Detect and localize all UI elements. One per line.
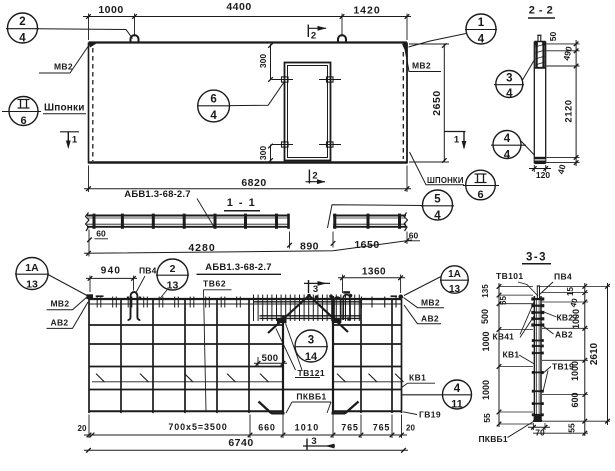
svg-text:55: 55 bbox=[499, 296, 508, 305]
svg-text:1000: 1000 bbox=[481, 331, 491, 351]
svg-text:765: 765 bbox=[341, 423, 358, 433]
svg-text:6740: 6740 bbox=[228, 437, 253, 449]
svg-text:1А: 1А bbox=[25, 262, 39, 274]
svg-text:МВ2: МВ2 bbox=[54, 62, 73, 72]
svg-text:4: 4 bbox=[504, 133, 511, 145]
svg-text:2610: 2610 bbox=[589, 342, 600, 365]
svg-text:1000: 1000 bbox=[98, 4, 123, 16]
svg-text:3: 3 bbox=[506, 73, 512, 85]
svg-text:14: 14 bbox=[305, 351, 318, 363]
svg-text:765: 765 bbox=[373, 423, 390, 433]
svg-text:11: 11 bbox=[451, 399, 463, 411]
svg-text:1420: 1420 bbox=[353, 5, 380, 17]
svg-text:135: 135 bbox=[481, 284, 490, 298]
svg-text:АВ2: АВ2 bbox=[555, 330, 573, 340]
svg-text:1: 1 bbox=[454, 135, 460, 146]
svg-text:2: 2 bbox=[312, 171, 317, 182]
svg-text:КВ1: КВ1 bbox=[409, 373, 426, 383]
svg-text:940: 940 bbox=[101, 266, 122, 277]
svg-text:15: 15 bbox=[566, 287, 575, 296]
svg-text:1: 1 bbox=[478, 17, 485, 29]
svg-text:ПКВБ1: ПКВБ1 bbox=[479, 434, 508, 444]
svg-text:ШПОНКИ: ШПОНКИ bbox=[427, 176, 464, 185]
svg-text:300: 300 bbox=[258, 54, 268, 68]
svg-text:АБВ1.3-68-2.7: АБВ1.3-68-2.7 bbox=[205, 262, 271, 273]
svg-text:1 - 1: 1 - 1 bbox=[227, 197, 257, 209]
svg-text:2120: 2120 bbox=[564, 99, 575, 122]
svg-text:300: 300 bbox=[258, 146, 268, 160]
svg-text:4400: 4400 bbox=[226, 1, 251, 13]
svg-text:ПКВБ1: ПКВБ1 bbox=[296, 392, 326, 402]
svg-text:600: 600 bbox=[570, 392, 580, 407]
svg-text:1010: 1010 bbox=[295, 423, 320, 433]
svg-text:1000: 1000 bbox=[570, 361, 580, 381]
svg-text:13: 13 bbox=[449, 284, 461, 295]
svg-text:70: 70 bbox=[535, 428, 545, 438]
svg-text:1А: 1А bbox=[448, 269, 461, 280]
svg-text:4: 4 bbox=[506, 88, 513, 100]
svg-text:6: 6 bbox=[477, 189, 483, 201]
svg-text:ТВ62: ТВ62 bbox=[203, 279, 226, 289]
svg-text:4: 4 bbox=[454, 383, 461, 395]
svg-text:20: 20 bbox=[406, 424, 415, 433]
svg-text:60: 60 bbox=[409, 231, 419, 241]
svg-text:60: 60 bbox=[96, 229, 106, 239]
svg-text:4: 4 bbox=[504, 150, 511, 162]
svg-text:АБВ1.3-68-2.7: АБВ1.3-68-2.7 bbox=[124, 189, 190, 200]
svg-text:2: 2 bbox=[170, 263, 176, 275]
svg-text:6820: 6820 bbox=[241, 177, 266, 189]
svg-text:55: 55 bbox=[482, 413, 492, 423]
svg-text:МВ2: МВ2 bbox=[412, 61, 431, 71]
svg-text:1: 1 bbox=[72, 135, 78, 146]
svg-text:2: 2 bbox=[19, 16, 25, 28]
svg-text:500: 500 bbox=[480, 309, 490, 324]
svg-text:МВ2: МВ2 bbox=[421, 298, 440, 308]
svg-text:ПВ4: ПВ4 bbox=[554, 272, 572, 282]
svg-text:5: 5 bbox=[434, 194, 441, 206]
svg-text:ПВ4: ПВ4 bbox=[139, 266, 157, 276]
svg-text:890: 890 bbox=[300, 241, 319, 253]
svg-text:4: 4 bbox=[19, 33, 26, 45]
svg-text:1000: 1000 bbox=[571, 309, 581, 329]
svg-text:4: 4 bbox=[434, 210, 441, 222]
svg-text:2650: 2650 bbox=[431, 90, 443, 115]
svg-text:13: 13 bbox=[26, 279, 38, 291]
svg-text:3: 3 bbox=[311, 436, 316, 447]
svg-text:2: 2 bbox=[311, 31, 316, 42]
svg-text:1650: 1650 bbox=[354, 239, 379, 251]
svg-text:6: 6 bbox=[20, 115, 26, 127]
svg-text:ГВ19: ГВ19 bbox=[419, 410, 441, 420]
svg-text:4280: 4280 bbox=[188, 242, 215, 254]
svg-text:АВ2: АВ2 bbox=[421, 314, 439, 324]
svg-text:3: 3 bbox=[308, 335, 314, 347]
svg-text:4: 4 bbox=[210, 110, 217, 122]
svg-text:ТВ101: ТВ101 bbox=[496, 271, 524, 281]
svg-text:700х5=3500: 700х5=3500 bbox=[168, 422, 227, 432]
svg-text:660: 660 bbox=[258, 423, 275, 433]
svg-text:20: 20 bbox=[78, 424, 87, 433]
svg-text:1000: 1000 bbox=[481, 380, 491, 400]
svg-text:АВ2: АВ2 bbox=[51, 318, 69, 328]
svg-text:6: 6 bbox=[210, 94, 216, 106]
svg-text:МВ2: МВ2 bbox=[51, 299, 70, 309]
svg-text:3: 3 bbox=[313, 284, 318, 295]
svg-text:55: 55 bbox=[567, 423, 577, 433]
svg-text:КВ41: КВ41 bbox=[493, 332, 515, 342]
svg-text:1360: 1360 bbox=[362, 267, 386, 278]
svg-text:500: 500 bbox=[262, 353, 279, 364]
svg-text:50: 50 bbox=[548, 32, 558, 42]
svg-text:4: 4 bbox=[478, 34, 485, 46]
svg-text:120: 120 bbox=[536, 170, 550, 180]
svg-text:2 - 2: 2 - 2 bbox=[529, 5, 554, 17]
svg-text:Шпонки: Шпонки bbox=[44, 103, 85, 114]
svg-text:3-3: 3-3 bbox=[526, 252, 547, 264]
svg-text:13: 13 bbox=[167, 280, 179, 292]
svg-text:КВ1: КВ1 bbox=[503, 350, 520, 360]
